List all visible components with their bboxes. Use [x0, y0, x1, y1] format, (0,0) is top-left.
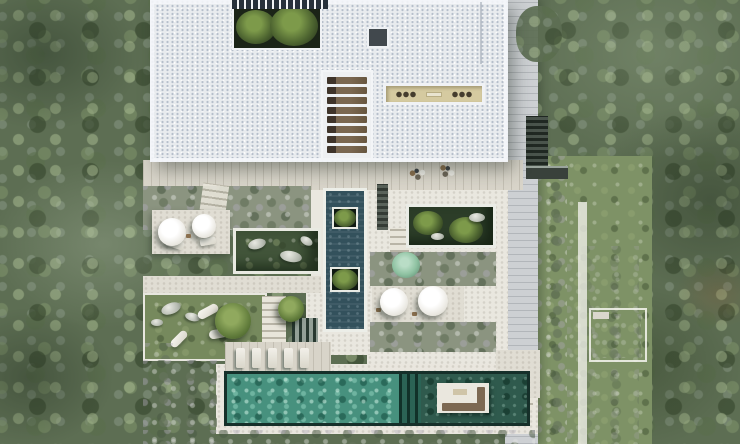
sunken-lawn-court [233, 228, 321, 274]
pool-lounger [236, 348, 245, 368]
island-sofa-arm [477, 387, 485, 411]
patio-table [426, 92, 442, 97]
louver-slat [327, 146, 367, 153]
rock [151, 319, 163, 326]
patio-chair [412, 312, 417, 316]
terrace-chair [186, 234, 191, 238]
lounge-terrace [152, 210, 230, 254]
rock [247, 237, 267, 251]
louver-panel [321, 70, 373, 160]
parasol [418, 286, 448, 316]
parasol [158, 218, 186, 246]
pool-lounger [252, 348, 261, 368]
pool-lounger [300, 348, 309, 368]
pool-lounger [268, 348, 277, 368]
patio-chair [376, 308, 381, 312]
pergola-strip [230, 0, 328, 9]
pool-lounger [284, 348, 293, 368]
rock [431, 233, 444, 240]
sun-lounger [200, 237, 217, 247]
stair-bridge [526, 166, 568, 179]
lawn-shrub-patch [145, 343, 181, 359]
aerial-villa-render [0, 0, 740, 444]
roof-seam [480, 2, 482, 64]
clerestory-patio [383, 83, 485, 105]
louver-slat [327, 87, 367, 94]
reflecting-pool [323, 188, 367, 332]
right-garden-path [578, 202, 587, 444]
pool-loungers [236, 348, 309, 368]
terrace-tree [278, 296, 304, 322]
rock [299, 234, 314, 247]
side-stairs [526, 116, 548, 168]
louver-slat [327, 107, 367, 114]
sunken-courtyard [406, 204, 496, 248]
louver-slat [327, 136, 367, 143]
louver-slat [327, 126, 367, 133]
teal-bush [392, 252, 420, 278]
skylight [367, 27, 389, 48]
parasol [192, 214, 216, 238]
tree-planter [330, 267, 360, 292]
mid-planting-band [370, 252, 496, 286]
right-lawn [537, 156, 652, 444]
pool-side-stairs [377, 184, 388, 230]
roof-courtyard [232, 2, 322, 50]
garden-path [143, 276, 321, 293]
courtyard-tree [270, 6, 318, 46]
right-garden-frame-planting [593, 314, 641, 358]
louver-slat [327, 97, 367, 104]
tree-planter [332, 207, 358, 229]
lower-planting-band [370, 322, 496, 352]
louver-slat [327, 116, 367, 123]
swimming-pool [224, 371, 530, 426]
louver-slat [327, 77, 367, 84]
right-lawn-shrub-border [537, 156, 567, 444]
villa-roof [150, 0, 508, 162]
island-table [453, 389, 467, 395]
rock [160, 300, 183, 317]
planter-tree [332, 269, 358, 290]
deck-chairs-left [408, 168, 426, 181]
patio-chairs [452, 90, 472, 99]
bottom-planting-band [143, 430, 535, 444]
patio-chairs [396, 90, 416, 99]
rock [469, 213, 485, 222]
overhanging-tree [516, 6, 562, 62]
garden-bench [593, 312, 609, 319]
courtyard-shrub [413, 211, 443, 235]
planter-tree [334, 209, 356, 227]
pool-submerged-steps [399, 374, 421, 423]
parasol [380, 288, 408, 316]
patio-terrace [372, 286, 464, 324]
rock [279, 249, 303, 264]
deck-chairs-right [435, 161, 457, 182]
garden-tree [215, 303, 251, 339]
pool-water-main [227, 374, 399, 423]
pool-island-platform [437, 383, 489, 413]
